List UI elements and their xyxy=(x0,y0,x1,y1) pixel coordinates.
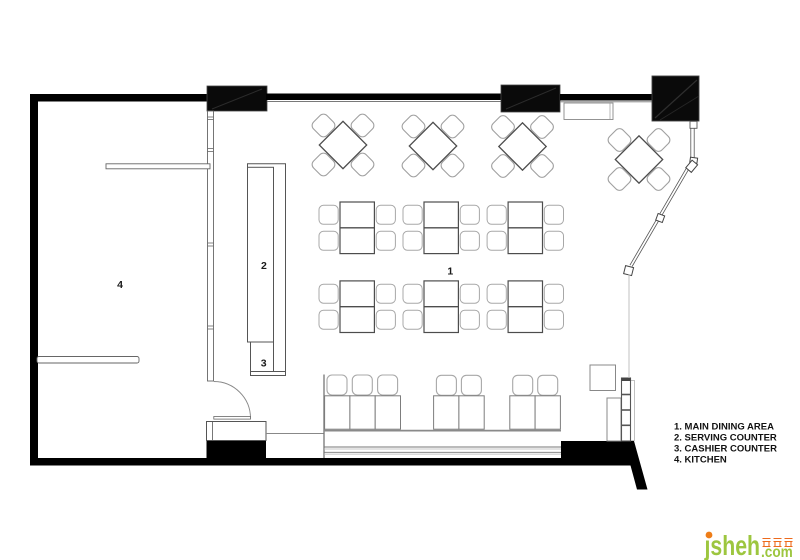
svg-text:3: 3 xyxy=(261,358,267,370)
svg-text:4: 4 xyxy=(117,279,123,291)
svg-text:2: 2 xyxy=(261,260,267,272)
svg-text:4. KITCHEN: 4. KITCHEN xyxy=(674,454,727,465)
svg-text:3. CASHIER COUNTER: 3. CASHIER COUNTER xyxy=(674,443,777,454)
svg-text:1: 1 xyxy=(447,265,453,277)
svg-text:1. MAIN DINING AREA: 1. MAIN DINING AREA xyxy=(674,421,774,432)
svg-text:2. SERVING COUNTER: 2. SERVING COUNTER xyxy=(674,432,777,443)
